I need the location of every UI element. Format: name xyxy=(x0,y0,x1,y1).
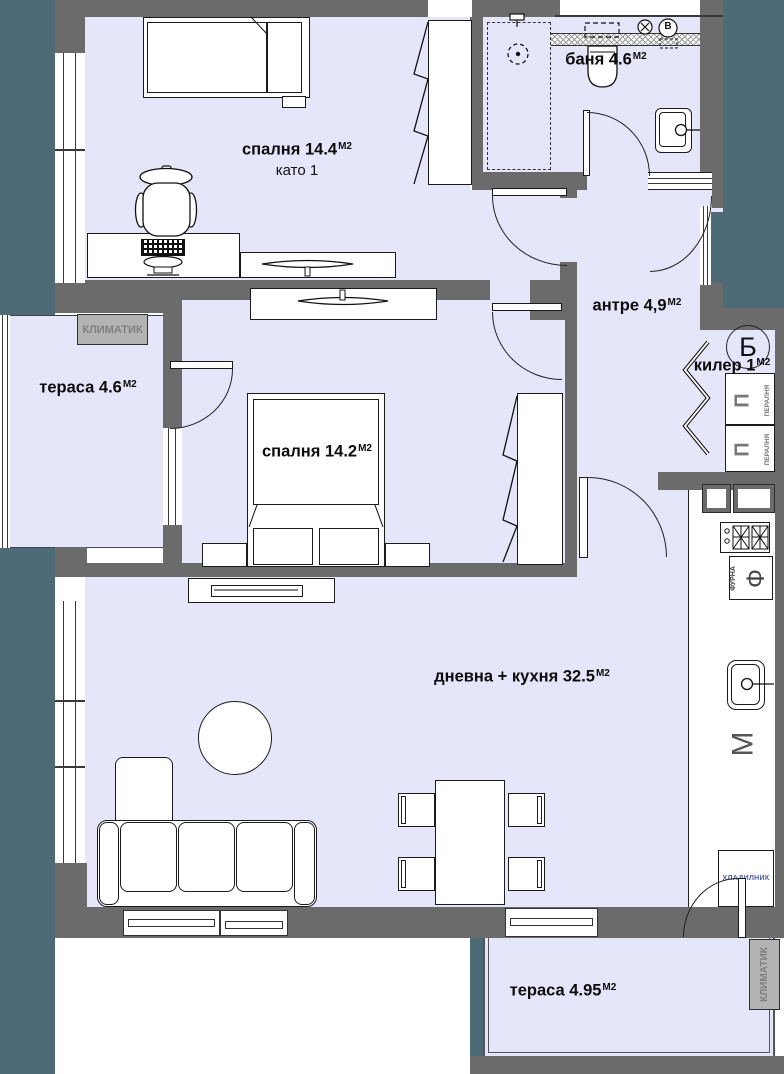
room-label-bedroom-2: спалня 14.2М2 xyxy=(237,442,397,461)
room-label-closet: килер 1М2 xyxy=(662,356,784,375)
room-label-terrace-left: тераса 4.6М2 xyxy=(18,378,158,397)
room-label-terrace-bottom: тераса 4.95М2 xyxy=(473,981,653,1000)
room-label-hallway: антре 4,9М2 xyxy=(557,296,717,315)
room-label-living-kitchen: дневна + кухня 32.5М2 xyxy=(422,667,622,686)
monitor-icon xyxy=(144,257,182,276)
tv-icon xyxy=(262,261,388,305)
room-label-bedroom-1: спалня 14.4М2 xyxy=(177,140,417,159)
room-label-bathroom: баня 4.6М2 xyxy=(520,50,692,69)
wardrobe-fold-marks xyxy=(414,22,517,562)
cooktop-burners xyxy=(725,526,768,549)
vent-symbol-label: В xyxy=(659,21,677,35)
room-note-bedroom-1: като 1 xyxy=(177,162,417,179)
tap-icons xyxy=(676,125,775,690)
floor-plan: Ф ФУРНА М ХЛАДИЛНИК П ПЕРАЛНЯ П ПЕРАЛНЯ … xyxy=(0,0,784,1074)
